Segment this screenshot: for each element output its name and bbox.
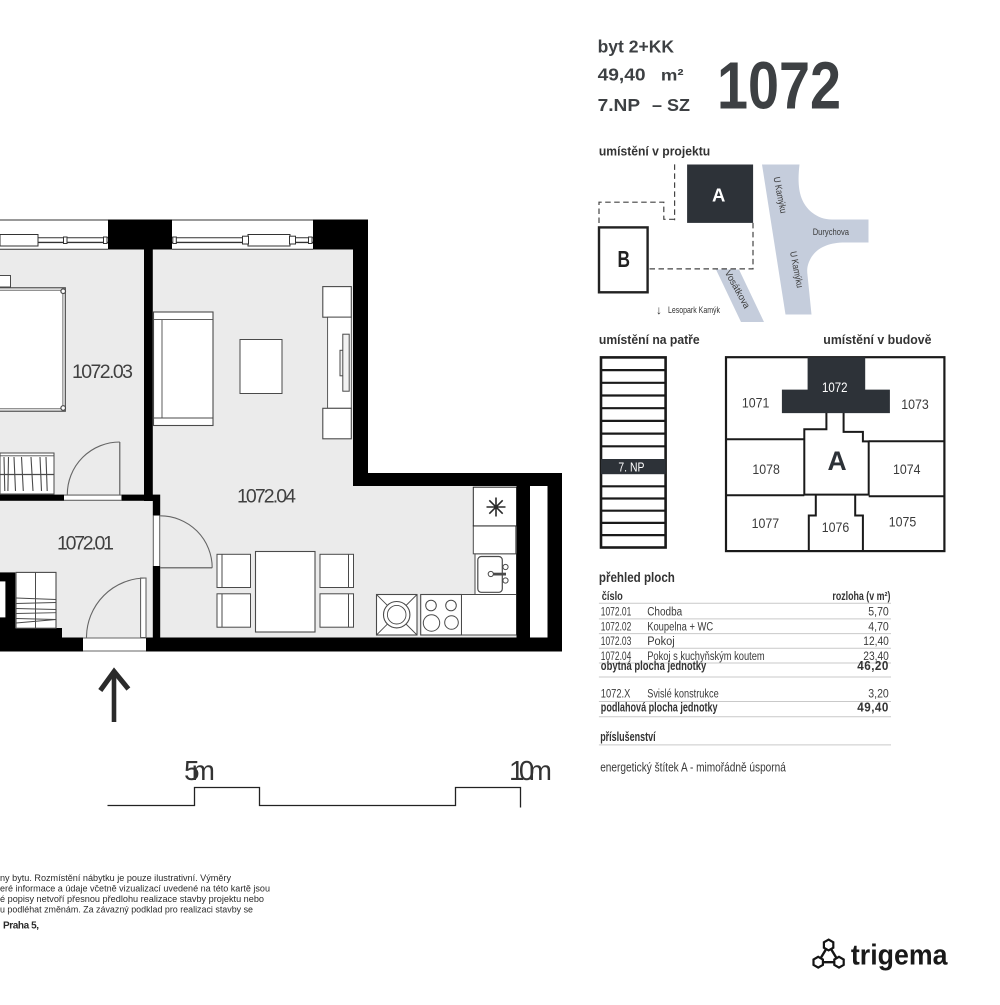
svg-text:rozloha (v m²): rozloha (v m²) — [832, 591, 890, 603]
svg-text:7.NP: 7.NP — [598, 95, 641, 115]
svg-text:B: B — [618, 246, 631, 272]
svg-text:↓: ↓ — [656, 303, 662, 317]
svg-text:7. NP: 7. NP — [618, 460, 644, 474]
svg-text:4,70: 4,70 — [868, 621, 889, 633]
svg-text:1072.03: 1072.03 — [601, 636, 632, 648]
svg-text:1076: 1076 — [822, 519, 850, 535]
svg-text:u podléhat změnám. Za závazný: u podléhat změnám. Za závazný podklad pr… — [0, 904, 253, 915]
svg-text:Praha 5,: Praha 5, — [3, 921, 39, 932]
svg-text:5m: 5m — [184, 755, 215, 786]
svg-text:1072.04: 1072.04 — [237, 486, 296, 508]
svg-text:Pokoj: Pokoj — [647, 636, 675, 648]
svg-text:1072.01: 1072.01 — [601, 607, 632, 619]
svg-text:umístění v budově: umístění v budově — [823, 332, 931, 347]
svg-text:3,20: 3,20 — [868, 689, 889, 701]
svg-text:Durychova: Durychova — [813, 227, 850, 238]
svg-text:49,40: 49,40 — [857, 701, 889, 715]
svg-text:Lesopark Kamýk: Lesopark Kamýk — [668, 305, 720, 316]
svg-text:1074: 1074 — [893, 461, 921, 477]
svg-text:trigema: trigema — [851, 940, 948, 972]
svg-text:ny bytu. Rozmístění nábytku je: ny bytu. Rozmístění nábytku je pouze ilu… — [0, 873, 231, 884]
svg-text:46,20: 46,20 — [857, 659, 889, 673]
svg-text:přehled ploch: přehled ploch — [599, 570, 675, 585]
svg-text:byt 2+KK: byt 2+KK — [598, 36, 675, 56]
svg-text:1078: 1078 — [752, 461, 780, 477]
svg-text:1071: 1071 — [742, 395, 770, 411]
svg-text:umístění v projektu: umístění v projektu — [599, 143, 710, 158]
svg-text:1072.01: 1072.01 — [57, 533, 114, 555]
svg-text:5,70: 5,70 — [868, 607, 889, 619]
svg-text:10m: 10m — [509, 755, 552, 786]
svg-text:číslo: číslo — [602, 591, 623, 603]
svg-text:Chodba: Chodba — [647, 607, 683, 619]
svg-text:1072.X: 1072.X — [601, 689, 631, 701]
svg-text:49,40: 49,40 — [598, 65, 646, 85]
svg-text:energetický štítek A - mimořád: energetický štítek A - mimořádně úsporná — [600, 761, 786, 775]
svg-text:umístění na patře: umístění na patře — [599, 332, 700, 347]
svg-text:obytná plocha jednotky: obytná plocha jednotky — [601, 659, 707, 673]
svg-text:příslušenství: příslušenství — [600, 729, 656, 744]
svg-text:m²: m² — [661, 68, 684, 85]
svg-text:1072: 1072 — [822, 380, 848, 395]
svg-text:1072.03: 1072.03 — [72, 361, 133, 383]
svg-text:1077: 1077 — [752, 515, 780, 531]
svg-text:1072.02: 1072.02 — [601, 621, 632, 633]
svg-text:1072: 1072 — [717, 49, 841, 124]
svg-text:eré informace a údaje včetně v: eré informace a údaje včetně vizualizací… — [0, 884, 270, 895]
svg-text:podlahová plocha jednotky: podlahová plocha jednotky — [601, 701, 718, 715]
svg-text:Koupelna + WC: Koupelna + WC — [647, 621, 713, 633]
svg-text:12,40: 12,40 — [863, 636, 889, 648]
svg-text:– SZ: – SZ — [652, 95, 690, 115]
svg-text:A: A — [712, 184, 725, 205]
svg-text:1073: 1073 — [901, 396, 929, 412]
svg-text:Svislé konstrukce: Svislé konstrukce — [647, 689, 719, 701]
svg-text:A: A — [828, 446, 847, 476]
svg-text:1075: 1075 — [889, 514, 917, 530]
